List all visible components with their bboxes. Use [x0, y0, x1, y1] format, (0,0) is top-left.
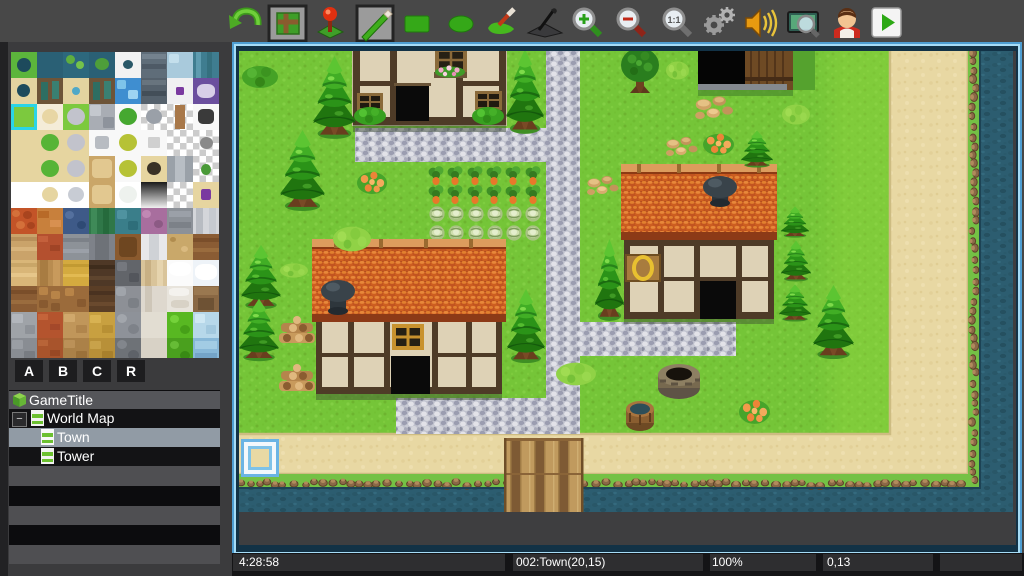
svg-text:1:1: 1:1: [667, 15, 680, 25]
